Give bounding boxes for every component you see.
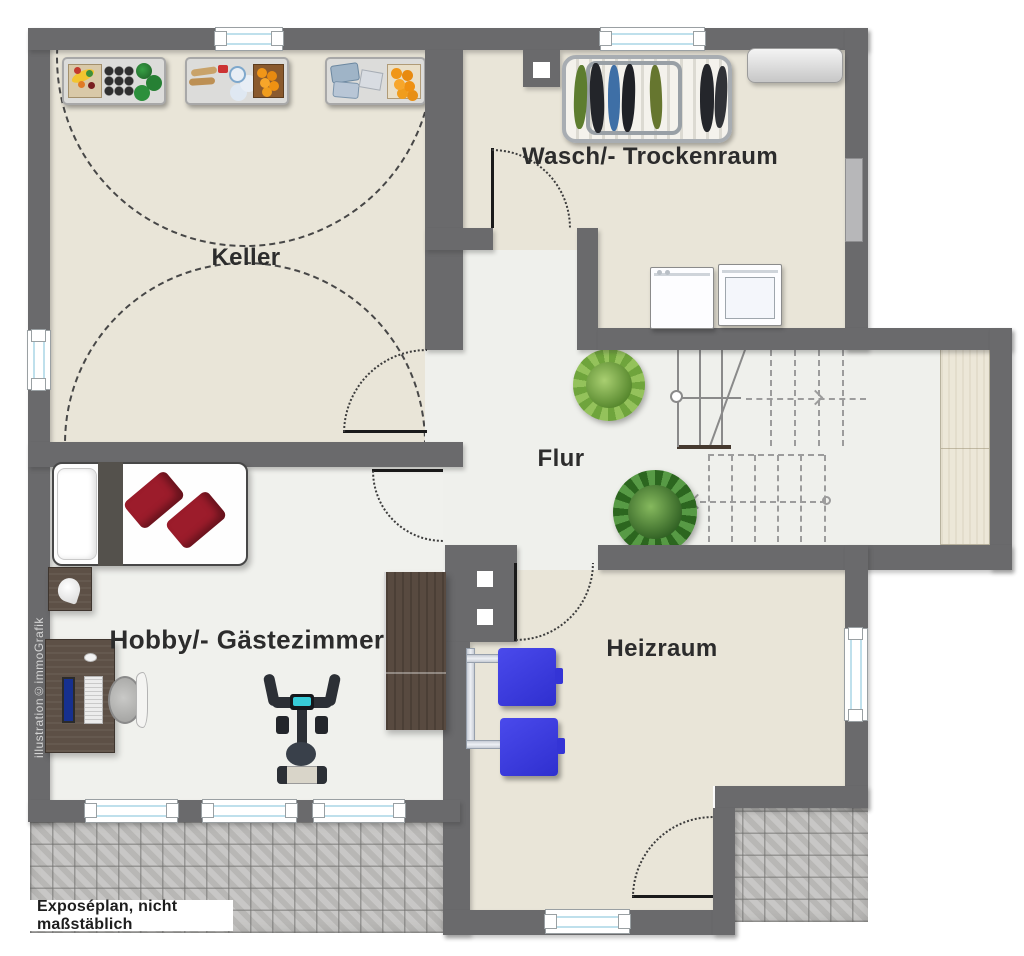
preserve-grid-icon [104, 66, 134, 96]
chimney-flue-icon [533, 62, 550, 78]
storage-shelf-icon [62, 57, 166, 105]
storage-box-icon [332, 81, 359, 99]
window-glass [208, 805, 291, 817]
desk-icon [45, 639, 115, 753]
window-glass [850, 634, 862, 715]
door-swing [372, 471, 443, 542]
exterior-door-icon [845, 158, 863, 242]
wall [598, 545, 1012, 570]
storage-shelf-icon [325, 57, 425, 105]
exercise-bike-icon [276, 716, 289, 734]
door-swing [516, 563, 594, 641]
floor-flur-notch [463, 250, 577, 350]
plates-icon [229, 66, 246, 83]
bread-icon [191, 66, 218, 77]
exercise-bike-icon [315, 716, 328, 734]
monitor-icon [62, 677, 75, 723]
wall [28, 28, 868, 50]
heating-pipe-icon [466, 654, 502, 663]
window-glass [33, 336, 45, 384]
oranges-icon [257, 68, 267, 78]
plant-icon [573, 349, 645, 421]
window-glass [551, 916, 624, 928]
dryer-icon [718, 264, 782, 326]
wall [577, 228, 598, 350]
window [313, 799, 405, 823]
chimney-block [445, 545, 517, 642]
oranges-icon [391, 68, 402, 79]
door-swing [632, 816, 713, 897]
chimney-flue-icon [477, 609, 493, 625]
room-label-keller: Keller [211, 244, 280, 272]
room-label-heizraum: Heizraum [606, 635, 717, 663]
chimney-flue-icon [477, 571, 493, 587]
cabbage-icon [136, 63, 152, 79]
window-glass [319, 805, 399, 817]
door-swing [343, 349, 427, 433]
window [202, 799, 297, 823]
wall [715, 786, 868, 808]
heating-pipe-icon [466, 648, 475, 748]
bike-seat-icon [286, 742, 316, 766]
wall [425, 228, 493, 250]
heating-tank-icon [498, 648, 556, 706]
bike-display-icon [293, 697, 311, 706]
bed-headboard [98, 462, 123, 566]
bed-pillow [57, 468, 97, 560]
wall [713, 808, 735, 935]
exercise-bike-icon [297, 710, 307, 746]
plan-disclaimer: Exposéplan, nicht maßstäblich [28, 900, 233, 931]
storage-shelf-icon [185, 57, 289, 105]
room-label-hobby: Hobby/- Gästezimmer [110, 625, 385, 656]
heating-tank-icon [500, 718, 558, 776]
patio-paving [720, 808, 868, 922]
built-in-cabinet-icon [940, 348, 990, 545]
window [85, 799, 178, 823]
bike-base-icon [317, 766, 327, 784]
drying-rack-icon [562, 55, 732, 143]
heating-pipe-icon [466, 740, 504, 749]
window [215, 27, 283, 51]
window [27, 330, 51, 390]
room-label-wasch: Wasch/- Trockenraum [522, 143, 778, 171]
window [844, 628, 868, 721]
bread-icon [189, 77, 215, 86]
window-glass [221, 33, 277, 45]
window-glass [606, 33, 699, 45]
washing-machine-icon [650, 267, 714, 329]
window [545, 909, 630, 934]
window-glass [91, 805, 172, 817]
pack-icon [359, 69, 384, 91]
illustrator-watermark: illustration©immoGrafik [28, 572, 50, 804]
wall [598, 328, 1012, 350]
office-chair-back [136, 672, 148, 728]
vegetable-dots-icon [74, 67, 81, 74]
mouse-icon [84, 653, 97, 662]
wardrobe-icon [384, 572, 446, 730]
keyboard-icon [84, 676, 103, 724]
plant-icon [613, 470, 697, 554]
countertop-icon [747, 48, 843, 83]
red-pack-icon [218, 65, 228, 73]
wall [425, 50, 463, 350]
bike-base-icon [277, 766, 287, 784]
floor-plan: Keller Wasch/- Trockenraum Flur Hobby/- … [0, 0, 1024, 956]
wall [990, 328, 1012, 570]
room-label-flur: Flur [538, 445, 585, 473]
window [600, 27, 705, 51]
